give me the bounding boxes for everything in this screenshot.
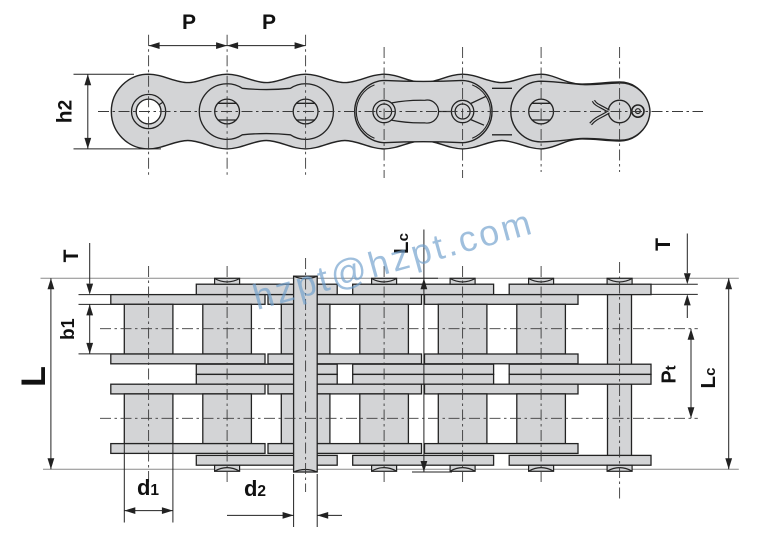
svg-text:h2: h2 xyxy=(54,100,77,123)
svg-text:L: L xyxy=(15,366,53,387)
svg-text:P: P xyxy=(262,11,276,34)
svg-text:T: T xyxy=(652,238,675,251)
svg-text:b1: b1 xyxy=(58,318,79,340)
svg-text:T: T xyxy=(60,249,83,262)
svg-text:Pt: Pt xyxy=(658,365,680,383)
svg-text:P: P xyxy=(182,11,196,34)
